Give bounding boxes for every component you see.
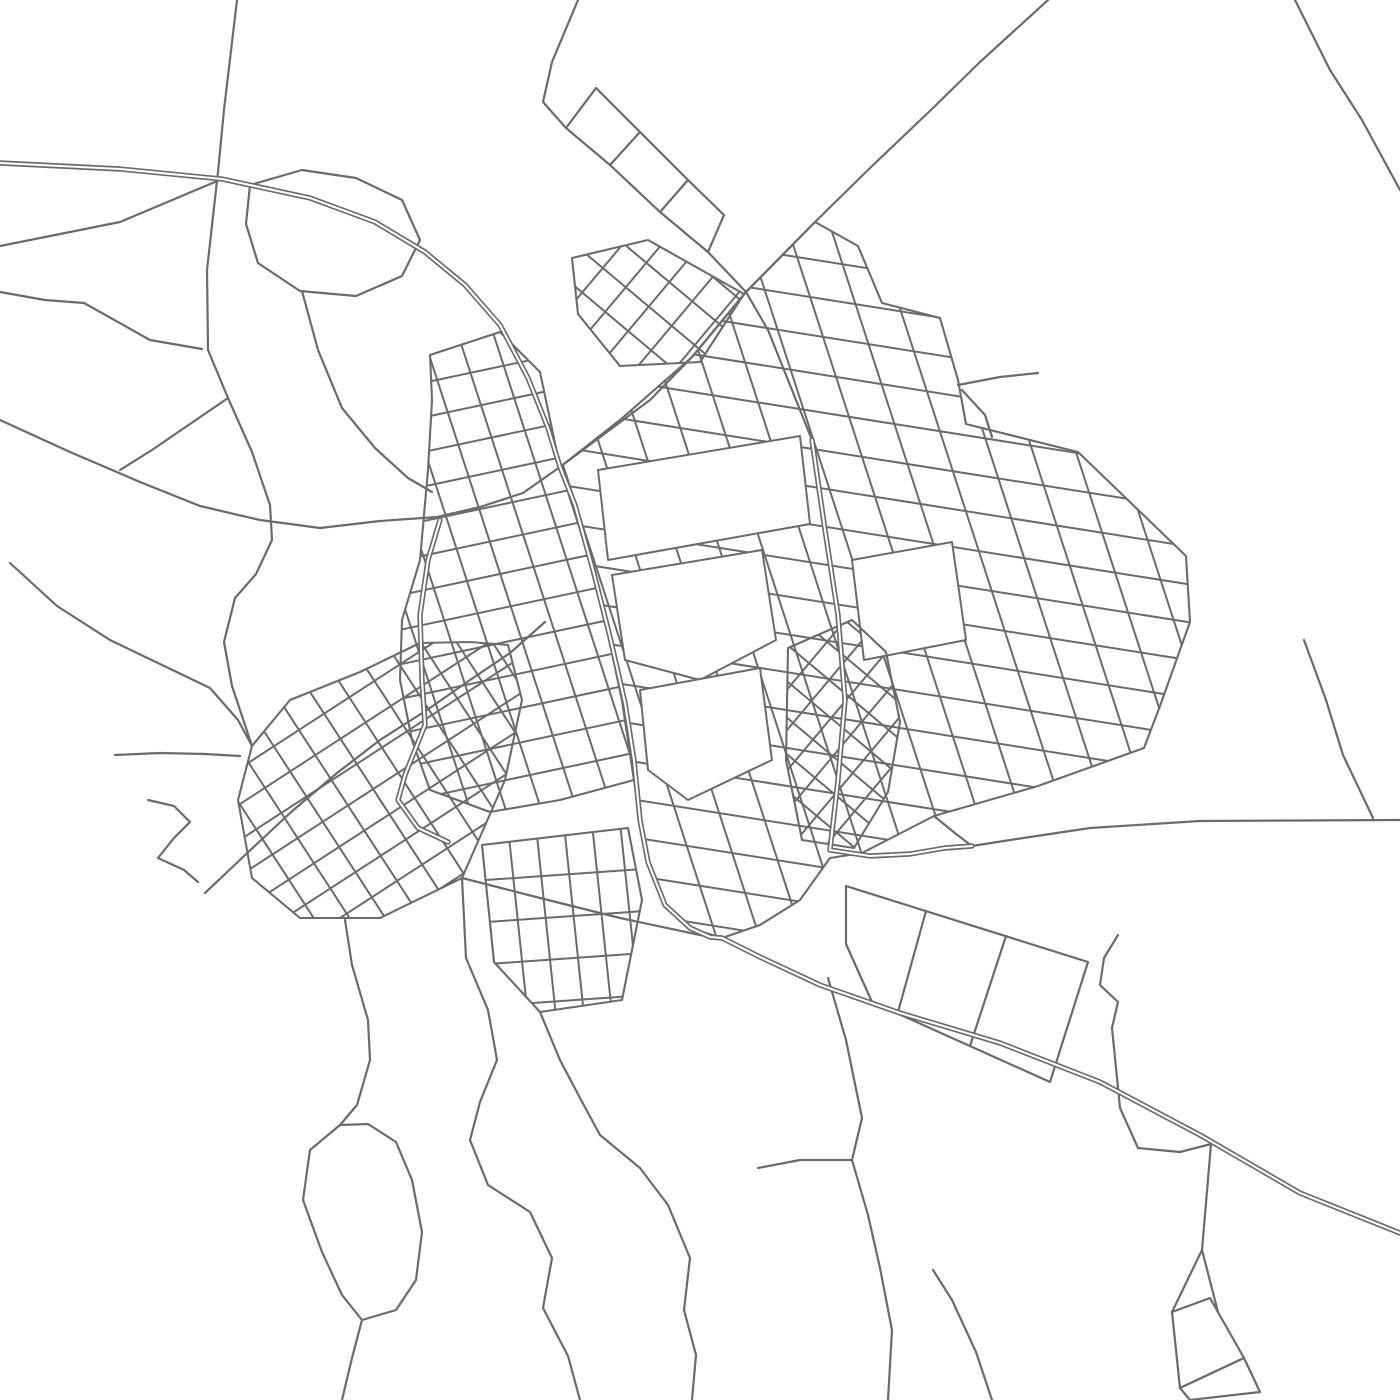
superblock-3 [852, 542, 966, 660]
map-canvas [0, 0, 1400, 1400]
street-map [0, 0, 1400, 1400]
